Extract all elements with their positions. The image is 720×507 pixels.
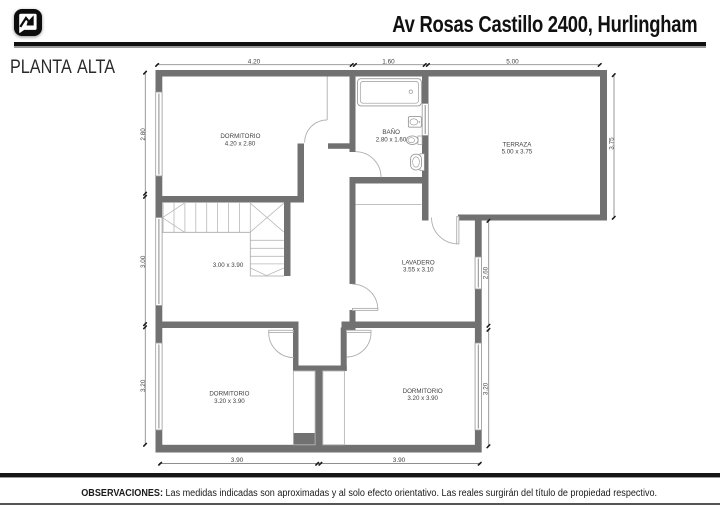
- svg-text:BAÑO: BAÑO: [382, 129, 400, 136]
- svg-text:4.20 x 2.80: 4.20 x 2.80: [225, 140, 256, 147]
- svg-text:5.00: 5.00: [506, 59, 519, 66]
- svg-text:2.60: 2.60: [483, 266, 490, 279]
- svg-text:2.80: 2.80: [140, 128, 147, 141]
- svg-text:3.20: 3.20: [140, 379, 147, 392]
- svg-text:DORMITORIO: DORMITORIO: [209, 391, 249, 398]
- svg-text:DORMITORIO: DORMITORIO: [220, 133, 260, 140]
- svg-text:3.55 x 3.10: 3.55 x 3.10: [403, 266, 434, 273]
- svg-text:3.00: 3.00: [140, 255, 147, 268]
- svg-text:1.60: 1.60: [382, 59, 395, 66]
- svg-text:2.80 x 1.60: 2.80 x 1.60: [376, 136, 407, 143]
- svg-text:3.20: 3.20: [483, 382, 490, 395]
- svg-text:3.00 x 3.90: 3.00 x 3.90: [213, 262, 244, 269]
- svg-text:3.90: 3.90: [231, 457, 244, 464]
- svg-text:5.00 x 3.75: 5.00 x 3.75: [502, 149, 533, 156]
- svg-text:4.20: 4.20: [248, 59, 261, 66]
- svg-text:3.20 x 3.90: 3.20 x 3.90: [407, 395, 438, 402]
- svg-text:3.75: 3.75: [608, 137, 615, 150]
- svg-text:3.20 x 3.90: 3.20 x 3.90: [214, 398, 245, 405]
- svg-text:3.90: 3.90: [393, 457, 406, 464]
- svg-text:TERRAZA: TERRAZA: [502, 142, 532, 149]
